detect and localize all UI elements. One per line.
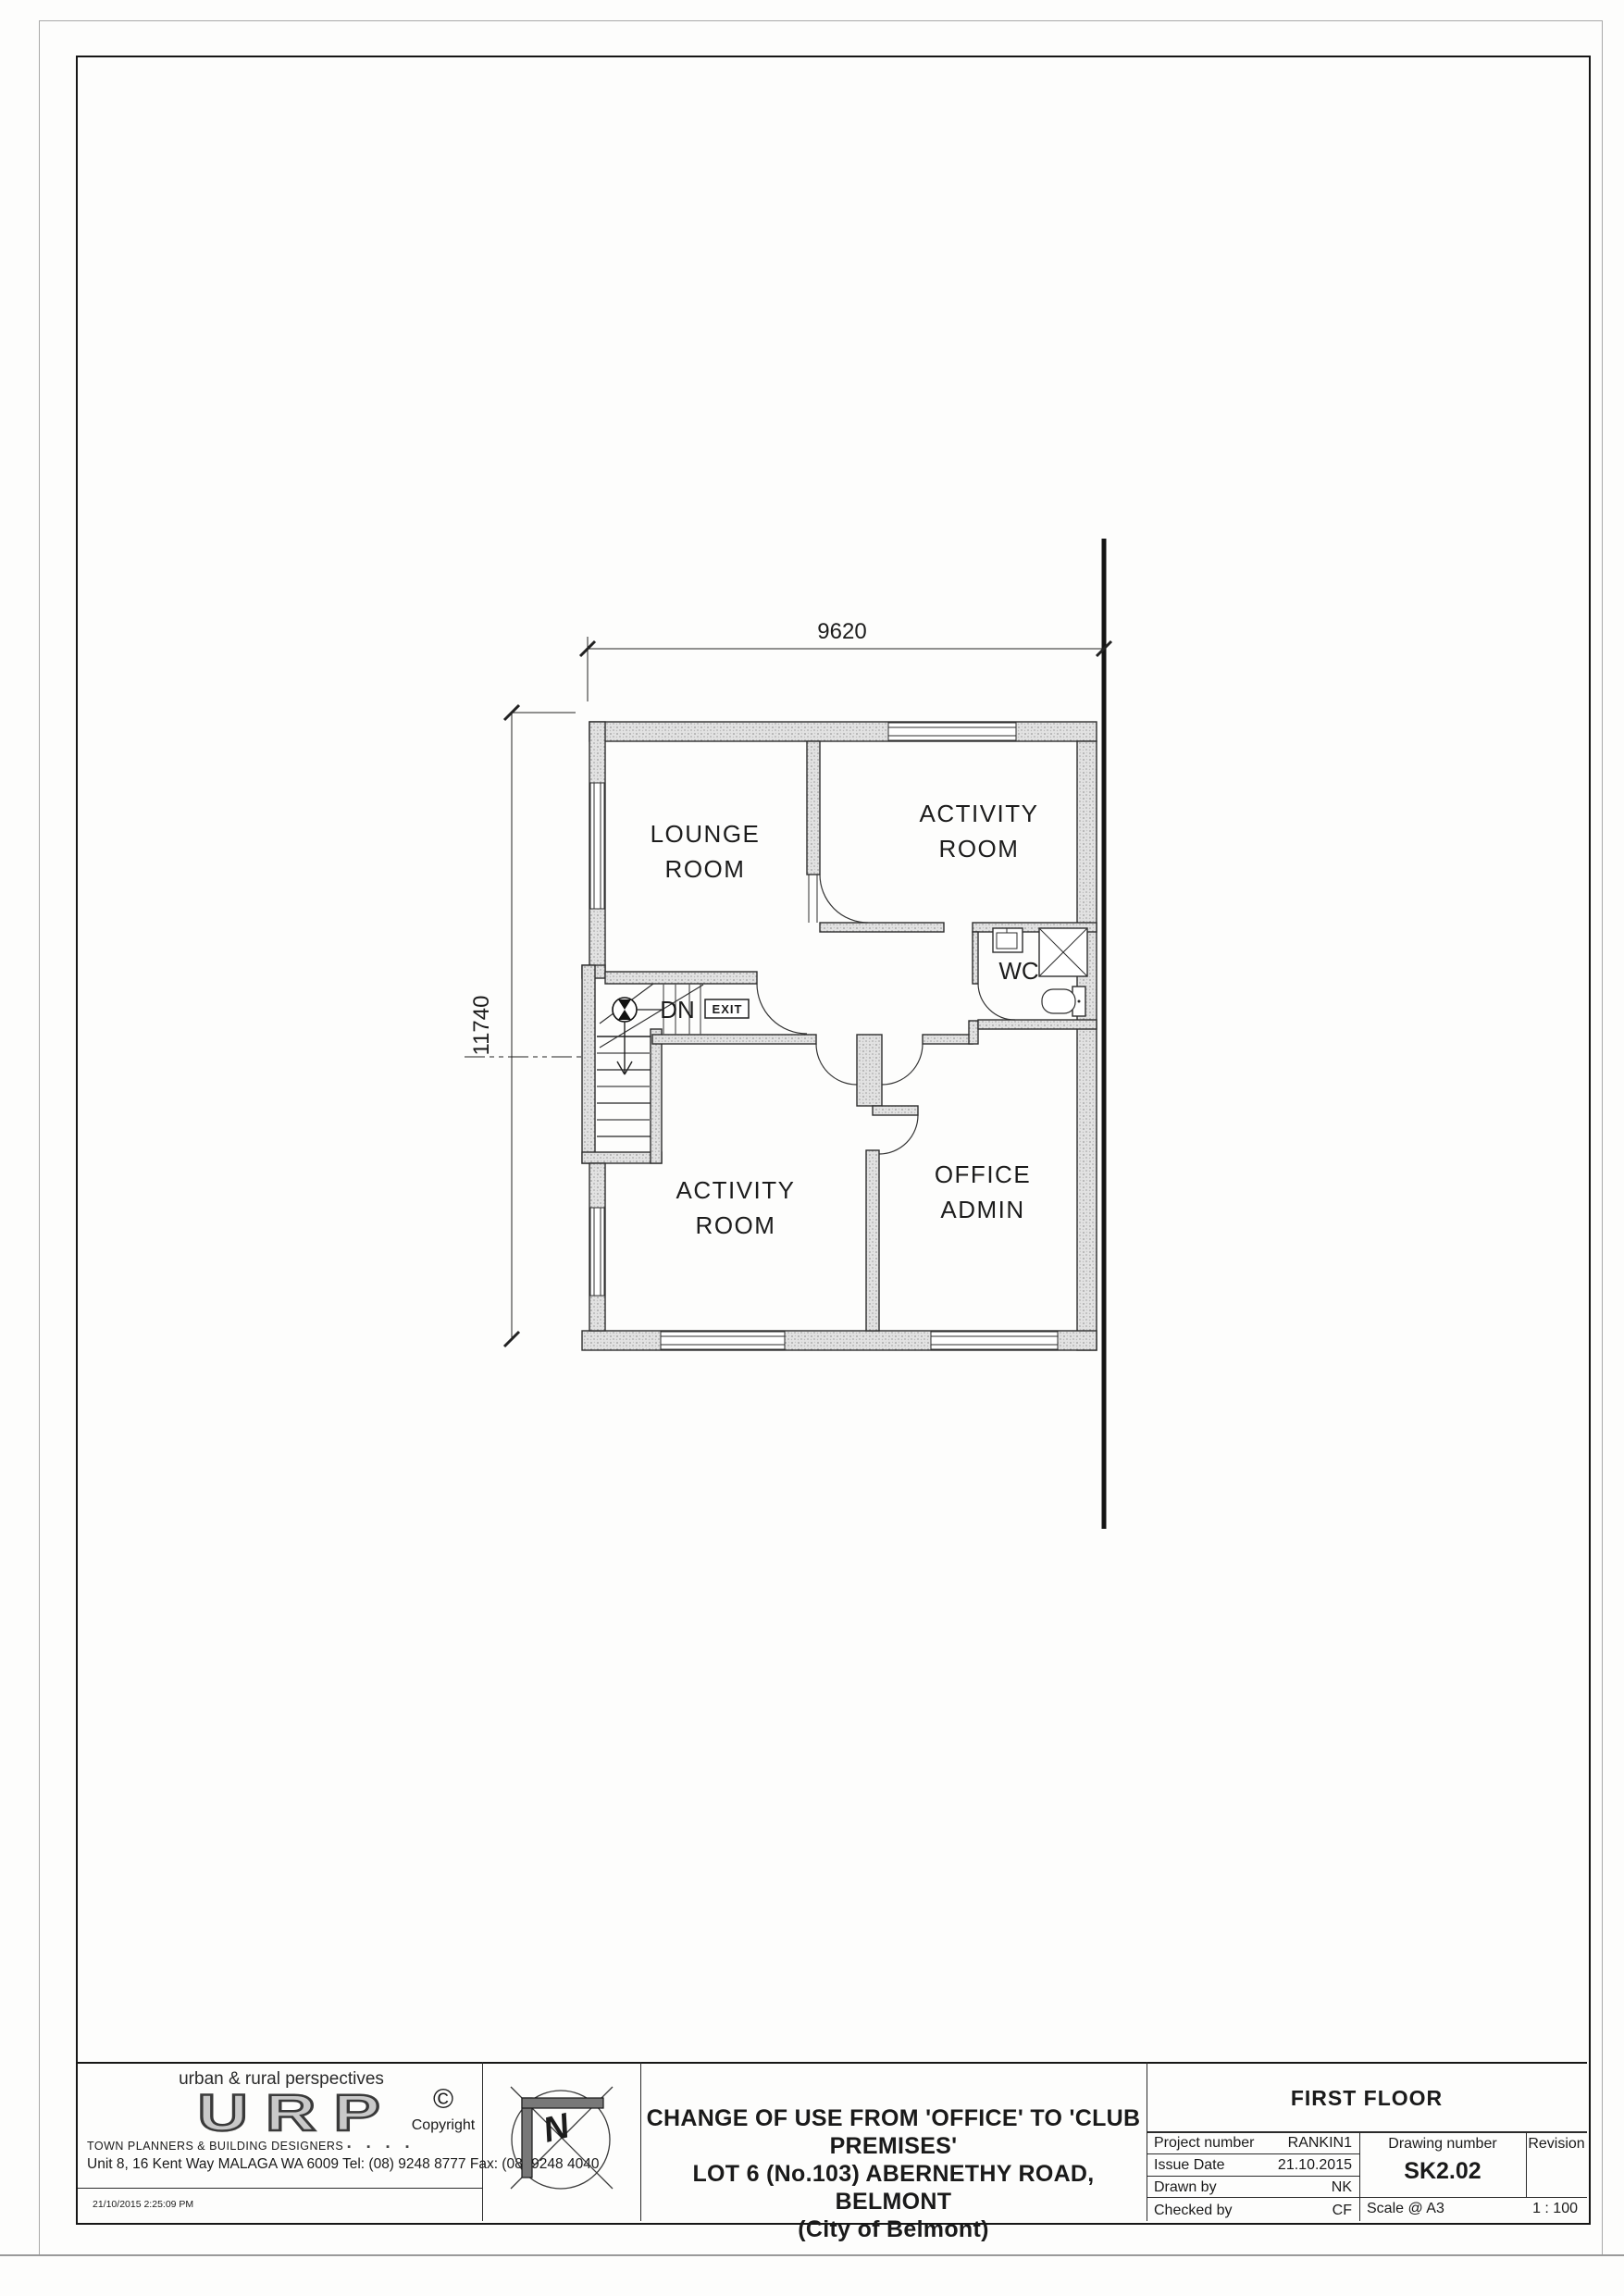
firm-subtitle: TOWN PLANNERS & BUILDING DESIGNERS ▪ ▪ ▪… [87, 2140, 415, 2153]
exit-sign-text: EXIT [713, 1002, 743, 1016]
checked-by-label: Checked by [1154, 2203, 1233, 2219]
issue-date-value: 21.10.2015 [1278, 2157, 1352, 2174]
title-block: urban & rural perspectives URP TOWN PLAN… [78, 2062, 1587, 2221]
scale-value: 1 : 100 [1532, 2201, 1578, 2217]
project-number-value: RANKIN1 [1288, 2135, 1352, 2152]
dimension-width [580, 637, 1111, 701]
scale-label: Scale @ A3 [1367, 2201, 1444, 2217]
project-number-label: Project number [1154, 2135, 1255, 2152]
activity-room-bottom-label-2: ROOM [696, 1211, 776, 1239]
dim-height-text: 11740 [469, 996, 494, 1056]
lounge-room-label-2: ROOM [665, 855, 746, 883]
project-title-line-1: CHANGE OF USE FROM 'OFFICE' TO 'CLUB PRE… [640, 2104, 1147, 2160]
activity-room-bottom-label-1: ACTIVITY [676, 1176, 795, 1204]
dn-label: DN [660, 996, 695, 1024]
drawn-by-label: Drawn by [1154, 2179, 1217, 2196]
drawn-by-row: Drawn by NK [1147, 2176, 1359, 2198]
drawn-by-value: NK [1332, 2179, 1352, 2196]
revision-label: Revision [1526, 2136, 1587, 2153]
north-arrow-icon: N [482, 2062, 640, 2221]
project-title-line-2: LOT 6 (No.103) ABERNETHY ROAD, BELMONT [640, 2160, 1147, 2215]
checked-by-value: CF [1333, 2203, 1352, 2219]
lounge-room-label-1: LOUNGE [651, 820, 761, 848]
title-block-firm-section: urban & rural perspectives URP TOWN PLAN… [78, 2062, 483, 2221]
project-number-row: Project number RANKIN1 [1147, 2131, 1359, 2153]
drawing-number-value: SK2.02 [1359, 2158, 1526, 2185]
copyright-label: Copyright [392, 2117, 494, 2134]
project-title-section: CHANGE OF USE FROM 'OFFICE' TO 'CLUB PRE… [640, 2062, 1147, 2221]
logo-squares-icon: ▪ ▪ ▪ ▪ [347, 2141, 415, 2153]
firm-subtitle-text: TOWN PLANNERS & BUILDING DESIGNERS [87, 2140, 343, 2153]
wc-label: WC [998, 957, 1038, 985]
project-title-line-3: (City of Belmont) [640, 2215, 1147, 2243]
activity-room-top-label-1: ACTIVITY [919, 800, 1038, 827]
drawing-title: FIRST FLOOR [1147, 2086, 1587, 2111]
drawing-info-section: FIRST FLOOR Project number RANKIN1 Issue… [1147, 2062, 1587, 2221]
drawing-number-label: Drawing number [1359, 2136, 1526, 2153]
drawing-sheet: 9620 11740 [0, 0, 1624, 2296]
copyright-block: © Copyright [392, 2086, 494, 2134]
north-letter: N [539, 2106, 575, 2151]
floor-plan-drawing: 9620 11740 [0, 0, 1624, 2296]
copyright-icon: © [392, 2086, 494, 2114]
print-timestamp: 21/10/2015 2:25:09 PM [93, 2199, 193, 2210]
project-title: CHANGE OF USE FROM 'OFFICE' TO 'CLUB PRE… [640, 2104, 1147, 2243]
office-admin-label-2: ADMIN [940, 1196, 1024, 1223]
north-arrow-section: N [482, 2062, 641, 2221]
activity-room-top-label-2: ROOM [939, 835, 1020, 863]
checked-by-row: Checked by CF [1147, 2199, 1359, 2221]
issue-date-label: Issue Date [1154, 2157, 1224, 2174]
issue-date-row: Issue Date 21.10.2015 [1147, 2153, 1359, 2176]
dim-width-text: 9620 [817, 619, 866, 644]
office-admin-label-1: OFFICE [935, 1160, 1031, 1188]
